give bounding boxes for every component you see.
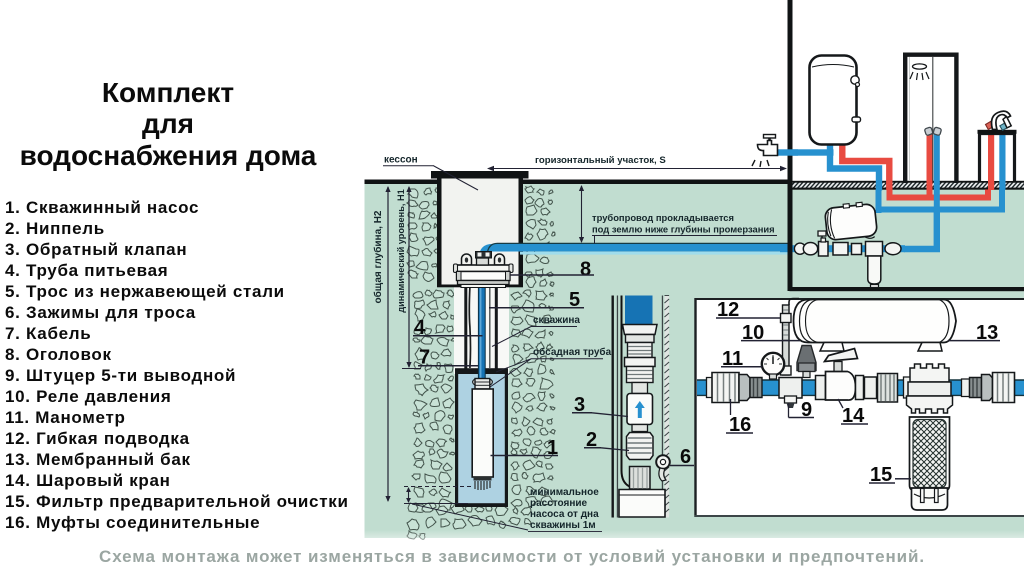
svg-text:обсадная труба: обсадная труба (533, 346, 612, 358)
svg-text:динамический уровень, Н1: динамический уровень, Н1 (396, 189, 406, 312)
svg-text:насоса от дна: насоса от дна (530, 509, 599, 520)
svg-text:кессон: кессон (384, 155, 418, 166)
svg-text:общая глубина, Н2: общая глубина, Н2 (372, 210, 384, 303)
svg-text:6: 6 (680, 446, 691, 468)
svg-text:трубопровод прокладывается: трубопровод прокладывается (592, 212, 734, 223)
svg-text:под землю ниже глубины промерз: под землю ниже глубины промерзания (592, 224, 775, 235)
svg-text:8: 8 (580, 259, 591, 281)
svg-text:минимальное: минимальное (530, 487, 599, 498)
svg-text:горизонтальный участок, S: горизонтальный участок, S (535, 155, 666, 166)
svg-text:скважины 1м: скважины 1м (530, 520, 596, 531)
svg-text:расстояние: расстояние (530, 498, 588, 509)
svg-text:скважина: скважина (533, 315, 580, 326)
svg-text:9: 9 (801, 399, 812, 421)
